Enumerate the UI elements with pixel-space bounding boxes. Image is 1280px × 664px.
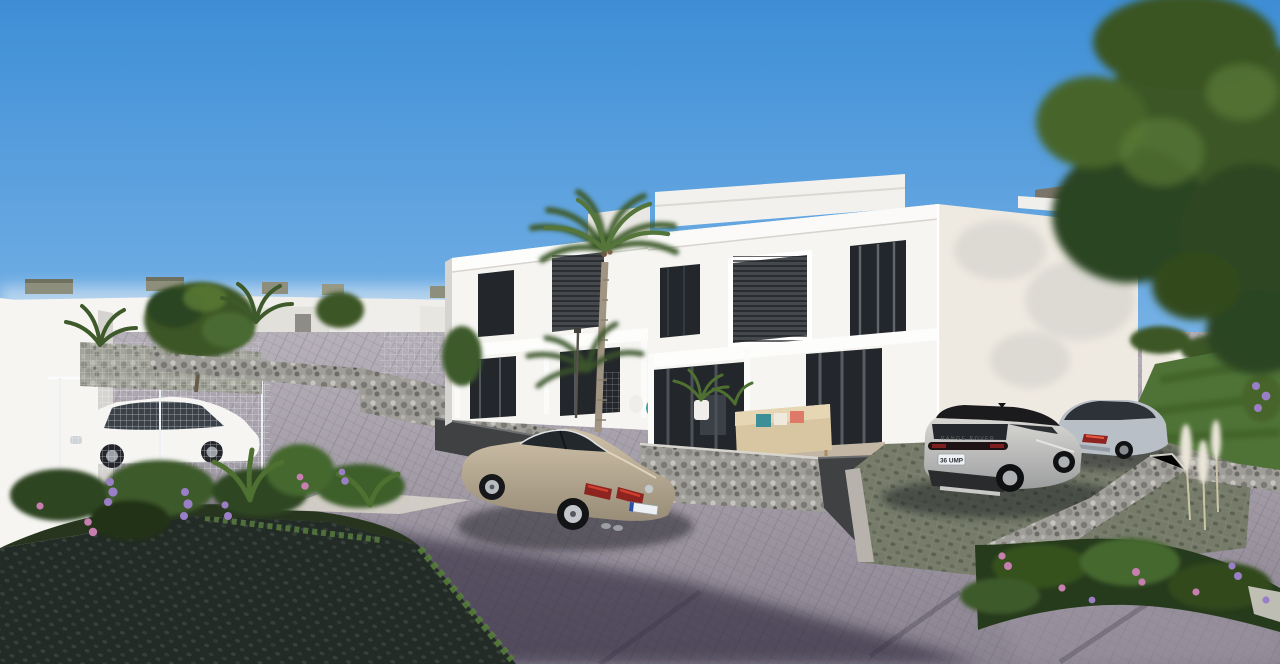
teal-cushion	[756, 414, 771, 427]
vw-badge	[645, 485, 653, 493]
conifer-bush	[442, 326, 482, 386]
sedan-exhaust	[601, 523, 611, 529]
suv-license-plate-text: 36 UMP	[940, 458, 964, 465]
render-canvas: RANGE ROVER 36 UMP	[0, 0, 1280, 664]
scene-svg: RANGE ROVER 36 UMP	[0, 0, 1280, 664]
suv-tailgate-text: RANGE ROVER	[941, 436, 996, 442]
villa2-window	[478, 270, 514, 337]
coral-cushion	[790, 411, 804, 423]
villa-upper-window-1	[660, 264, 700, 338]
white-plant-pot	[629, 395, 643, 413]
